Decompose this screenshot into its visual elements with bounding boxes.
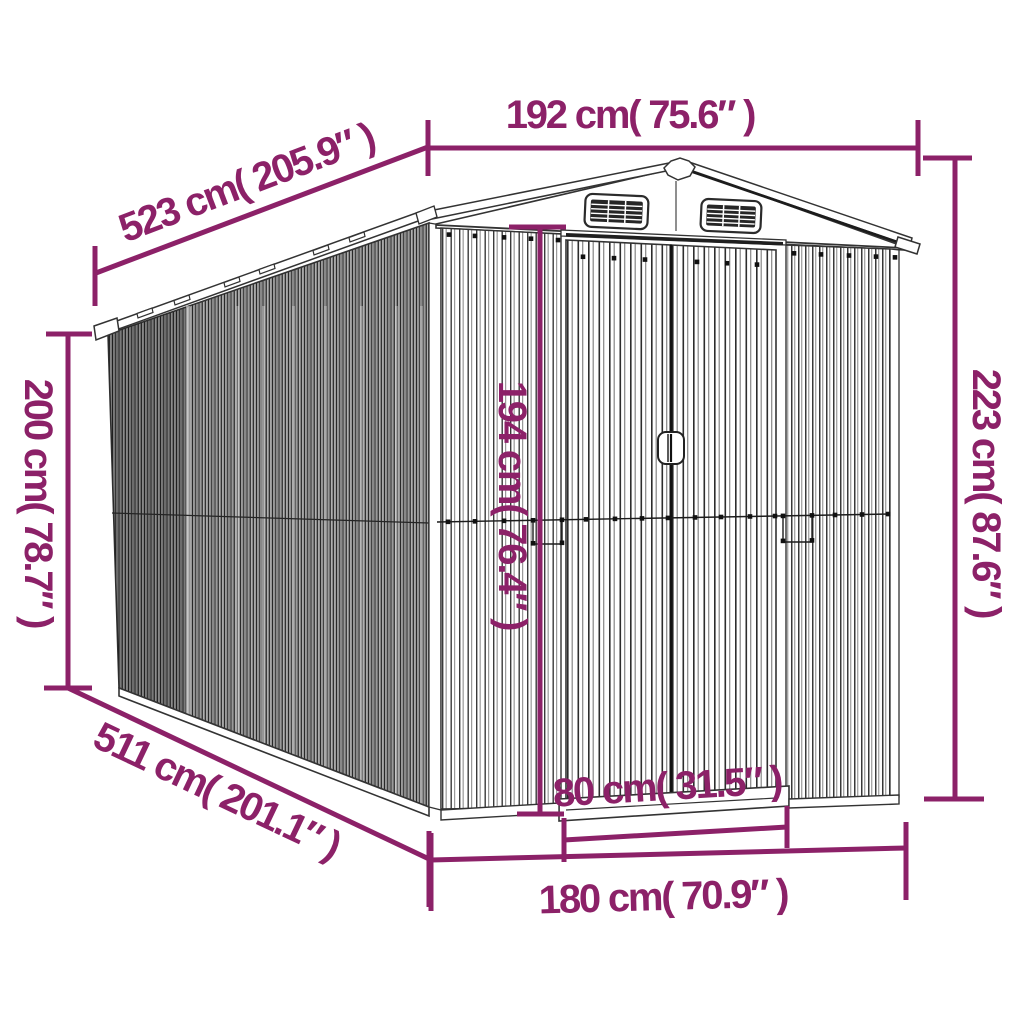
svg-text:200 cm( 78.7″ ): 200 cm( 78.7″ ) xyxy=(16,379,60,628)
svg-text:192 cm( 75.6″ ): 192 cm( 75.6″ ) xyxy=(506,93,755,137)
svg-text:180 cm( 70.9″ ): 180 cm( 70.9″ ) xyxy=(538,872,789,923)
svg-text:194 cm( 76.4″ ): 194 cm( 76.4″ ) xyxy=(490,381,534,630)
svg-text:223 cm( 87.6″ ): 223 cm( 87.6″ ) xyxy=(964,369,1008,618)
